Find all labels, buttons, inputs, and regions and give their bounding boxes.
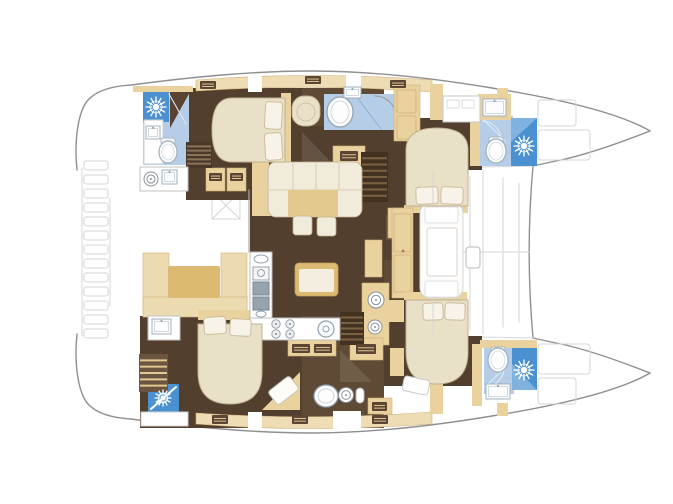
stbd-fwd-sink (486, 384, 510, 399)
foredeck-hatch-port-small (538, 100, 576, 126)
galley-basin-tiny (256, 311, 266, 317)
stbd-aft-stairs (139, 354, 168, 392)
drawer-icon-step-2 (230, 173, 243, 181)
stbd-fwd-toilet (488, 347, 508, 372)
port-fwd-sink (483, 99, 506, 116)
stbd-mid-washer (339, 388, 354, 403)
foredeck-hatch-stbd-large (538, 344, 590, 374)
drawer-icon-corridor (340, 151, 358, 161)
stbd-deck-strip-gap-2 (333, 411, 361, 430)
stbd-bow-locker (430, 384, 443, 414)
drawer-icon-deckstrip-3 (372, 415, 388, 424)
galley-round-sink (318, 321, 334, 337)
drawer-icon-topstrip-3 (390, 80, 406, 88)
stern-swim-steps (84, 161, 108, 338)
port-fwd-cabin-stairs (361, 152, 388, 202)
stbd-aft-pillow-1 (204, 316, 227, 334)
stbd-aft-sink (152, 319, 171, 334)
port-bow-locker (430, 84, 443, 120)
galley-side-cabinet (365, 240, 382, 277)
drawer-icon-topstrip-2 (305, 76, 321, 84)
drawer-icon-stbd-2 (372, 402, 387, 411)
coffee-table-top (299, 269, 334, 292)
stbd-fwd-bathroom-wall-top (480, 340, 537, 348)
port-aft-sink (146, 126, 160, 139)
gunwale-inner-port (480, 166, 533, 167)
ottoman-2 (317, 217, 336, 236)
stove-burner-3 (272, 330, 280, 338)
drawer-icon-stbd-1 (356, 344, 376, 354)
port-aft-pillow-1 (264, 102, 282, 130)
port-mid-vanity-sink (344, 87, 361, 98)
fwd-cockpit-cushion-2 (425, 281, 458, 297)
port-aft-bathroom-wall (133, 86, 193, 92)
port-aft-cabin-stairs (186, 142, 212, 168)
port-fwd-pillow-2 (441, 187, 464, 205)
port-aft-toilet (159, 138, 177, 163)
sofa-tan-cushion (288, 190, 338, 217)
appliance-washer-2 (368, 320, 382, 334)
stbd-fwd-pillow-2 (445, 303, 466, 321)
fwd-cockpit-cushion-1 (425, 207, 458, 223)
stbd-fwd-cabin-stairs (340, 312, 364, 345)
stbd-aft-lower-locker (141, 412, 188, 426)
cockpit-table (168, 266, 220, 298)
stbd-fwd-cabinet-1 (388, 300, 404, 322)
drawer-icon-topstrip-1 (200, 81, 216, 89)
laundry-sink (162, 170, 177, 184)
port-hull-inner-bow-edge (533, 131, 650, 166)
galley-appliance-2 (253, 297, 269, 310)
galley-pantry (392, 208, 413, 298)
stbd-aft-pillow-2 (230, 318, 252, 336)
port-deck-strip-gap-1 (248, 74, 262, 92)
galley-appliance-1 (253, 282, 269, 295)
laundry-washer (144, 172, 158, 186)
stbd-deck-strip-gap-1 (248, 412, 262, 430)
drawer-icon-galley-2 (314, 344, 332, 353)
stbd-fwd-bathroom-wall-left (472, 344, 482, 406)
drawer-icon-deckstrip-2 (292, 415, 308, 424)
appliance-washer-1 (368, 292, 384, 308)
foredeck-hatch-port-large (538, 130, 590, 160)
starboard-hull-inner-bow-edge (533, 338, 650, 373)
drawer-icon-deckstrip-1 (212, 415, 228, 424)
stove-burner-4 (286, 330, 294, 338)
port-aft-armchair (292, 96, 320, 126)
pantry-knob (402, 250, 405, 253)
port-fwd-pillow-1 (416, 187, 439, 205)
stbd-bow-shelf (497, 403, 508, 416)
stove-burner-1 (272, 320, 280, 328)
ottoman-1 (293, 216, 312, 235)
catamaran-floor-plan: Catamaran yacht interior floor plan, top… (0, 0, 673, 504)
stbd-aft-bed (198, 324, 262, 404)
stove-burner-2 (286, 320, 294, 328)
drawer-icon-step-1 (209, 173, 222, 181)
port-fwd-toilet (486, 137, 506, 163)
port-aft-pillow-2 (264, 133, 282, 161)
stbd-mid-pill (356, 388, 364, 403)
foredeck-hatch-stbd-small (538, 378, 576, 404)
galley-coffee-machine (253, 267, 269, 280)
drawer-icon-galley-1 (292, 344, 310, 353)
floor-plan-svg (0, 0, 673, 504)
galley-basin-small (254, 255, 268, 263)
gunwale-inner-stbd (480, 337, 533, 338)
stbd-fwd-cabinet-2 (390, 348, 404, 376)
salon-fwd-door (466, 247, 480, 268)
fwd-cockpit-table (427, 228, 457, 276)
